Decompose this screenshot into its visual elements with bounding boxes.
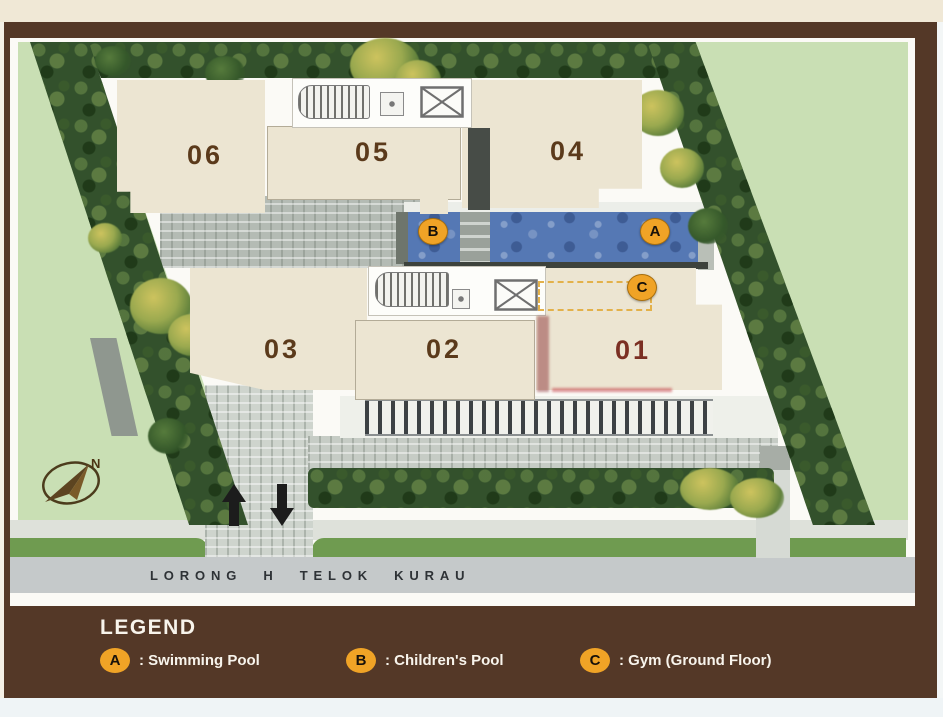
- legend-item-gym: C : Gym (Ground Floor): [580, 648, 771, 673]
- road: LORONG H TELOK KURAU: [10, 557, 915, 593]
- marker-swimming-pool: A: [640, 218, 670, 245]
- tree-icon: [95, 46, 131, 76]
- unit-05-label: 05: [333, 135, 413, 169]
- unit-03-label: 03: [242, 332, 322, 366]
- legend-item-childrens-pool: B : Children's Pool: [346, 648, 504, 673]
- staircase-icon: [375, 272, 449, 307]
- grass-verge-left: [10, 538, 208, 557]
- marker-childrens-pool: B: [418, 218, 448, 245]
- scan-edge-top: [0, 0, 943, 22]
- marker-gym: C: [627, 274, 657, 301]
- equipment-box: [452, 289, 470, 309]
- tree-icon: [660, 148, 704, 188]
- scan-edge-right: [937, 22, 943, 698]
- scan-smudge: [552, 388, 672, 392]
- pool-steps: [460, 212, 490, 264]
- tree-icon: [88, 223, 122, 253]
- compass-icon: N: [33, 452, 111, 514]
- unit-06-label: 06: [165, 138, 245, 172]
- tree-icon: [688, 208, 728, 244]
- utility-structure: [760, 446, 790, 470]
- legend-item-swimming-pool: A : Swimming Pool: [100, 648, 260, 673]
- equipment-box: [380, 92, 404, 116]
- grass-verge-center: [312, 538, 758, 557]
- walkway: [308, 436, 778, 472]
- tree-icon: [730, 478, 784, 518]
- unit-04-label: 04: [528, 134, 608, 168]
- unit-01-label: 01: [593, 333, 673, 367]
- building-unit-05-tab: [420, 198, 448, 214]
- legend-key-b: B: [346, 648, 376, 673]
- scan-smudge: [537, 316, 549, 392]
- legend-key-a: A: [100, 648, 130, 673]
- trellis-roof: [365, 399, 713, 436]
- elevator-icon: [494, 279, 538, 311]
- entry-exit-arrows-icon: [212, 482, 304, 528]
- elevator-icon: [420, 86, 464, 118]
- scan-edge-bottom: [0, 698, 943, 717]
- service-shaft: [468, 128, 490, 210]
- site-plan-page: LORONG H TELOK KURAU: [0, 0, 943, 717]
- grass-verge-right: [788, 538, 906, 557]
- legend-text-gym: : Gym (Ground Floor): [619, 652, 771, 669]
- legend-text-childrens-pool: : Children's Pool: [385, 652, 504, 669]
- tree-icon: [148, 418, 188, 454]
- road-name-label: LORONG H TELOK KURAU: [150, 568, 470, 583]
- staircase-icon: [298, 85, 370, 119]
- building-unit-03: [190, 268, 367, 390]
- compass-north-label: N: [91, 456, 100, 471]
- legend-key-c: C: [580, 648, 610, 673]
- unit-02-label: 02: [404, 332, 484, 366]
- legend-text-swimming-pool: : Swimming Pool: [139, 652, 260, 669]
- pool-edge-left: [396, 212, 408, 264]
- legend-title: LEGEND: [100, 616, 197, 640]
